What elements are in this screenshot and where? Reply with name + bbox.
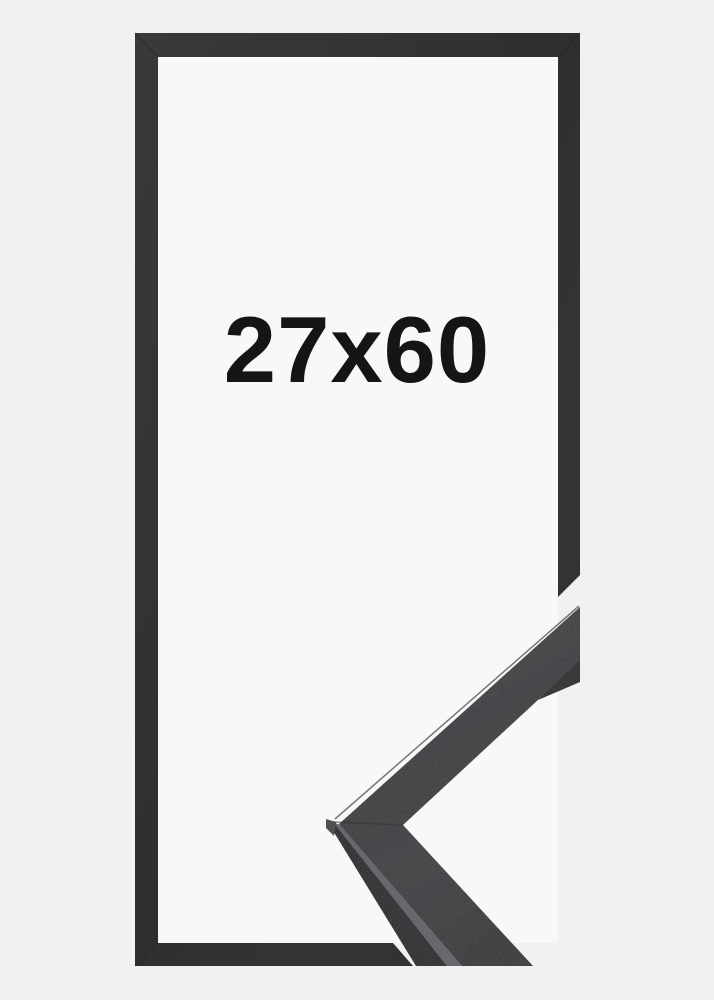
frame-illustration	[0, 0, 714, 1000]
size-label: 27x60	[0, 303, 714, 397]
frame-product-image: 27x60	[0, 0, 714, 1000]
